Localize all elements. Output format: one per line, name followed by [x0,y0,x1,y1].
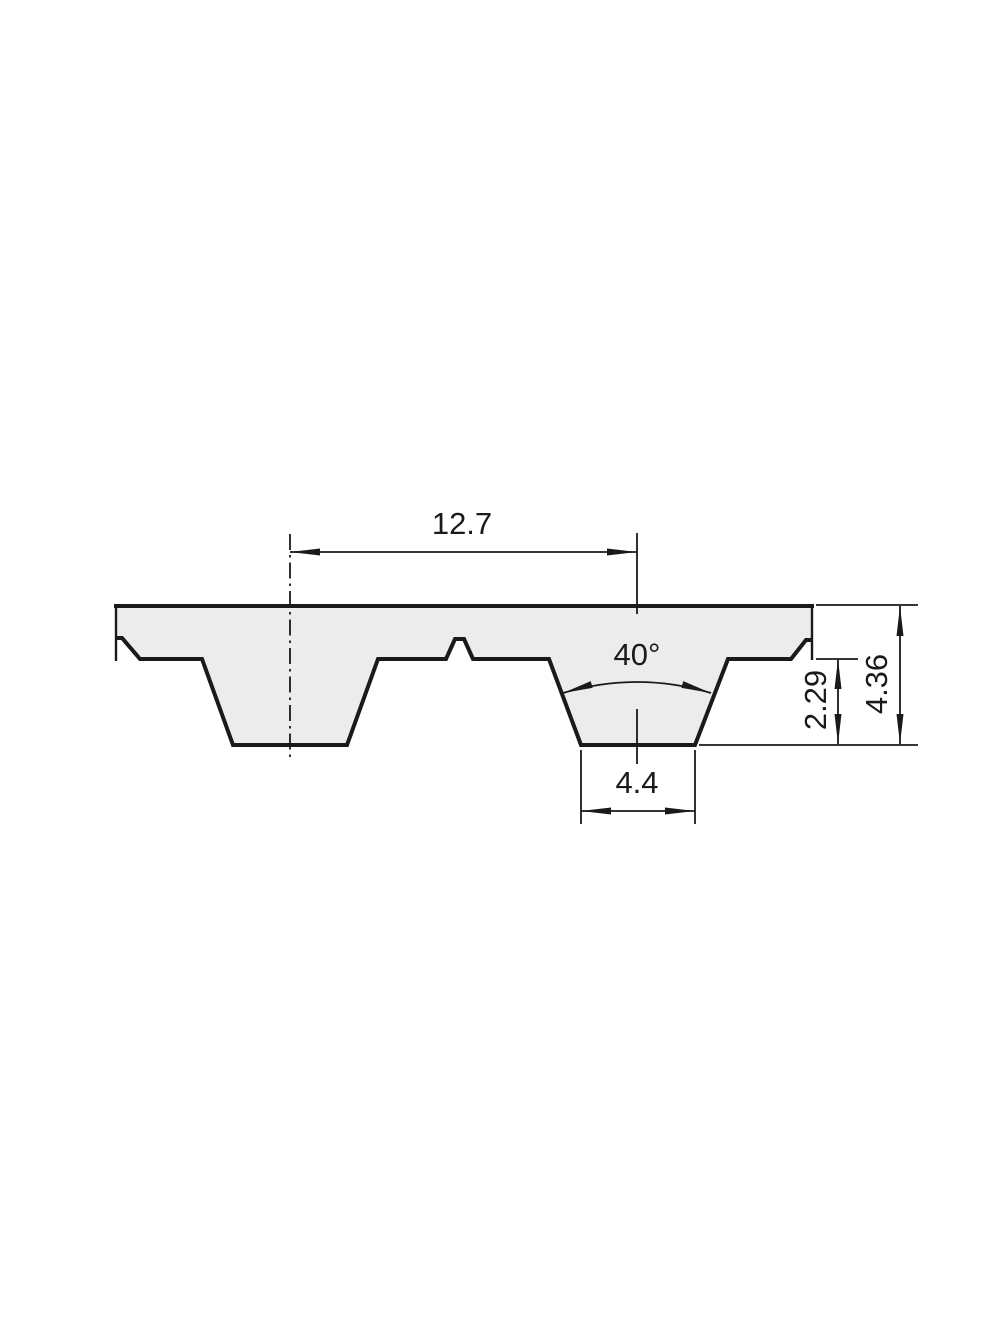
dimension-tooth-width: 4.4 [581,750,695,824]
dimension-tooth-depth: 2.29 [798,659,858,744]
pitch-label: 12.7 [432,506,492,541]
tooth-depth-label: 2.29 [798,670,833,730]
tooth-width-label: 4.4 [615,765,658,800]
technical-drawing: 12.7 40° 4.4 2.29 4.36 [0,0,1000,1333]
drawing-page: 12.7 40° 4.4 2.29 4.36 [0,0,1000,1333]
belt-body-fill [116,606,812,745]
dimension-pitch: 12.7 [290,506,637,552]
angle-label: 40° [614,637,661,672]
belt-cross-section [114,606,814,745]
belt-thickness-label: 4.36 [859,654,894,714]
